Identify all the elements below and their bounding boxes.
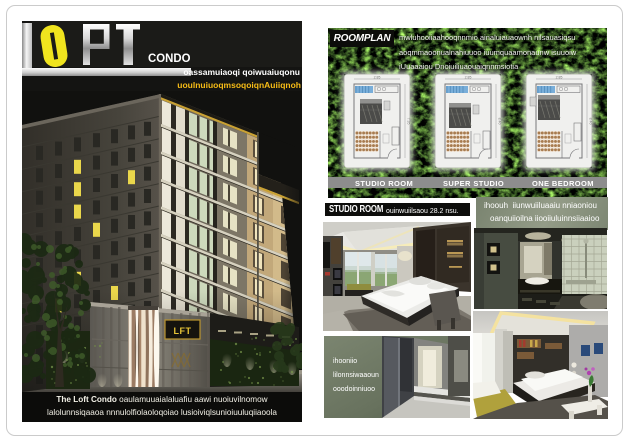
svg-text:ihooniio: ihooniio bbox=[333, 358, 357, 365]
svg-text:ooodoinniuoo: ooodoinniuoo bbox=[333, 386, 375, 393]
svg-text:lilonnsiwaaoun: lilonnsiwaaoun bbox=[333, 372, 379, 379]
svg-text:2.85: 2.85 bbox=[374, 76, 381, 80]
svg-text:8.40: 8.40 bbox=[589, 118, 593, 125]
svg-text:7.35: 7.35 bbox=[407, 118, 411, 125]
svg-text:LFT: LFT bbox=[174, 326, 192, 336]
svg-text:2.85: 2.85 bbox=[465, 76, 472, 80]
svg-text:8.40: 8.40 bbox=[498, 118, 502, 125]
svg-text:2.85: 2.85 bbox=[556, 76, 563, 80]
